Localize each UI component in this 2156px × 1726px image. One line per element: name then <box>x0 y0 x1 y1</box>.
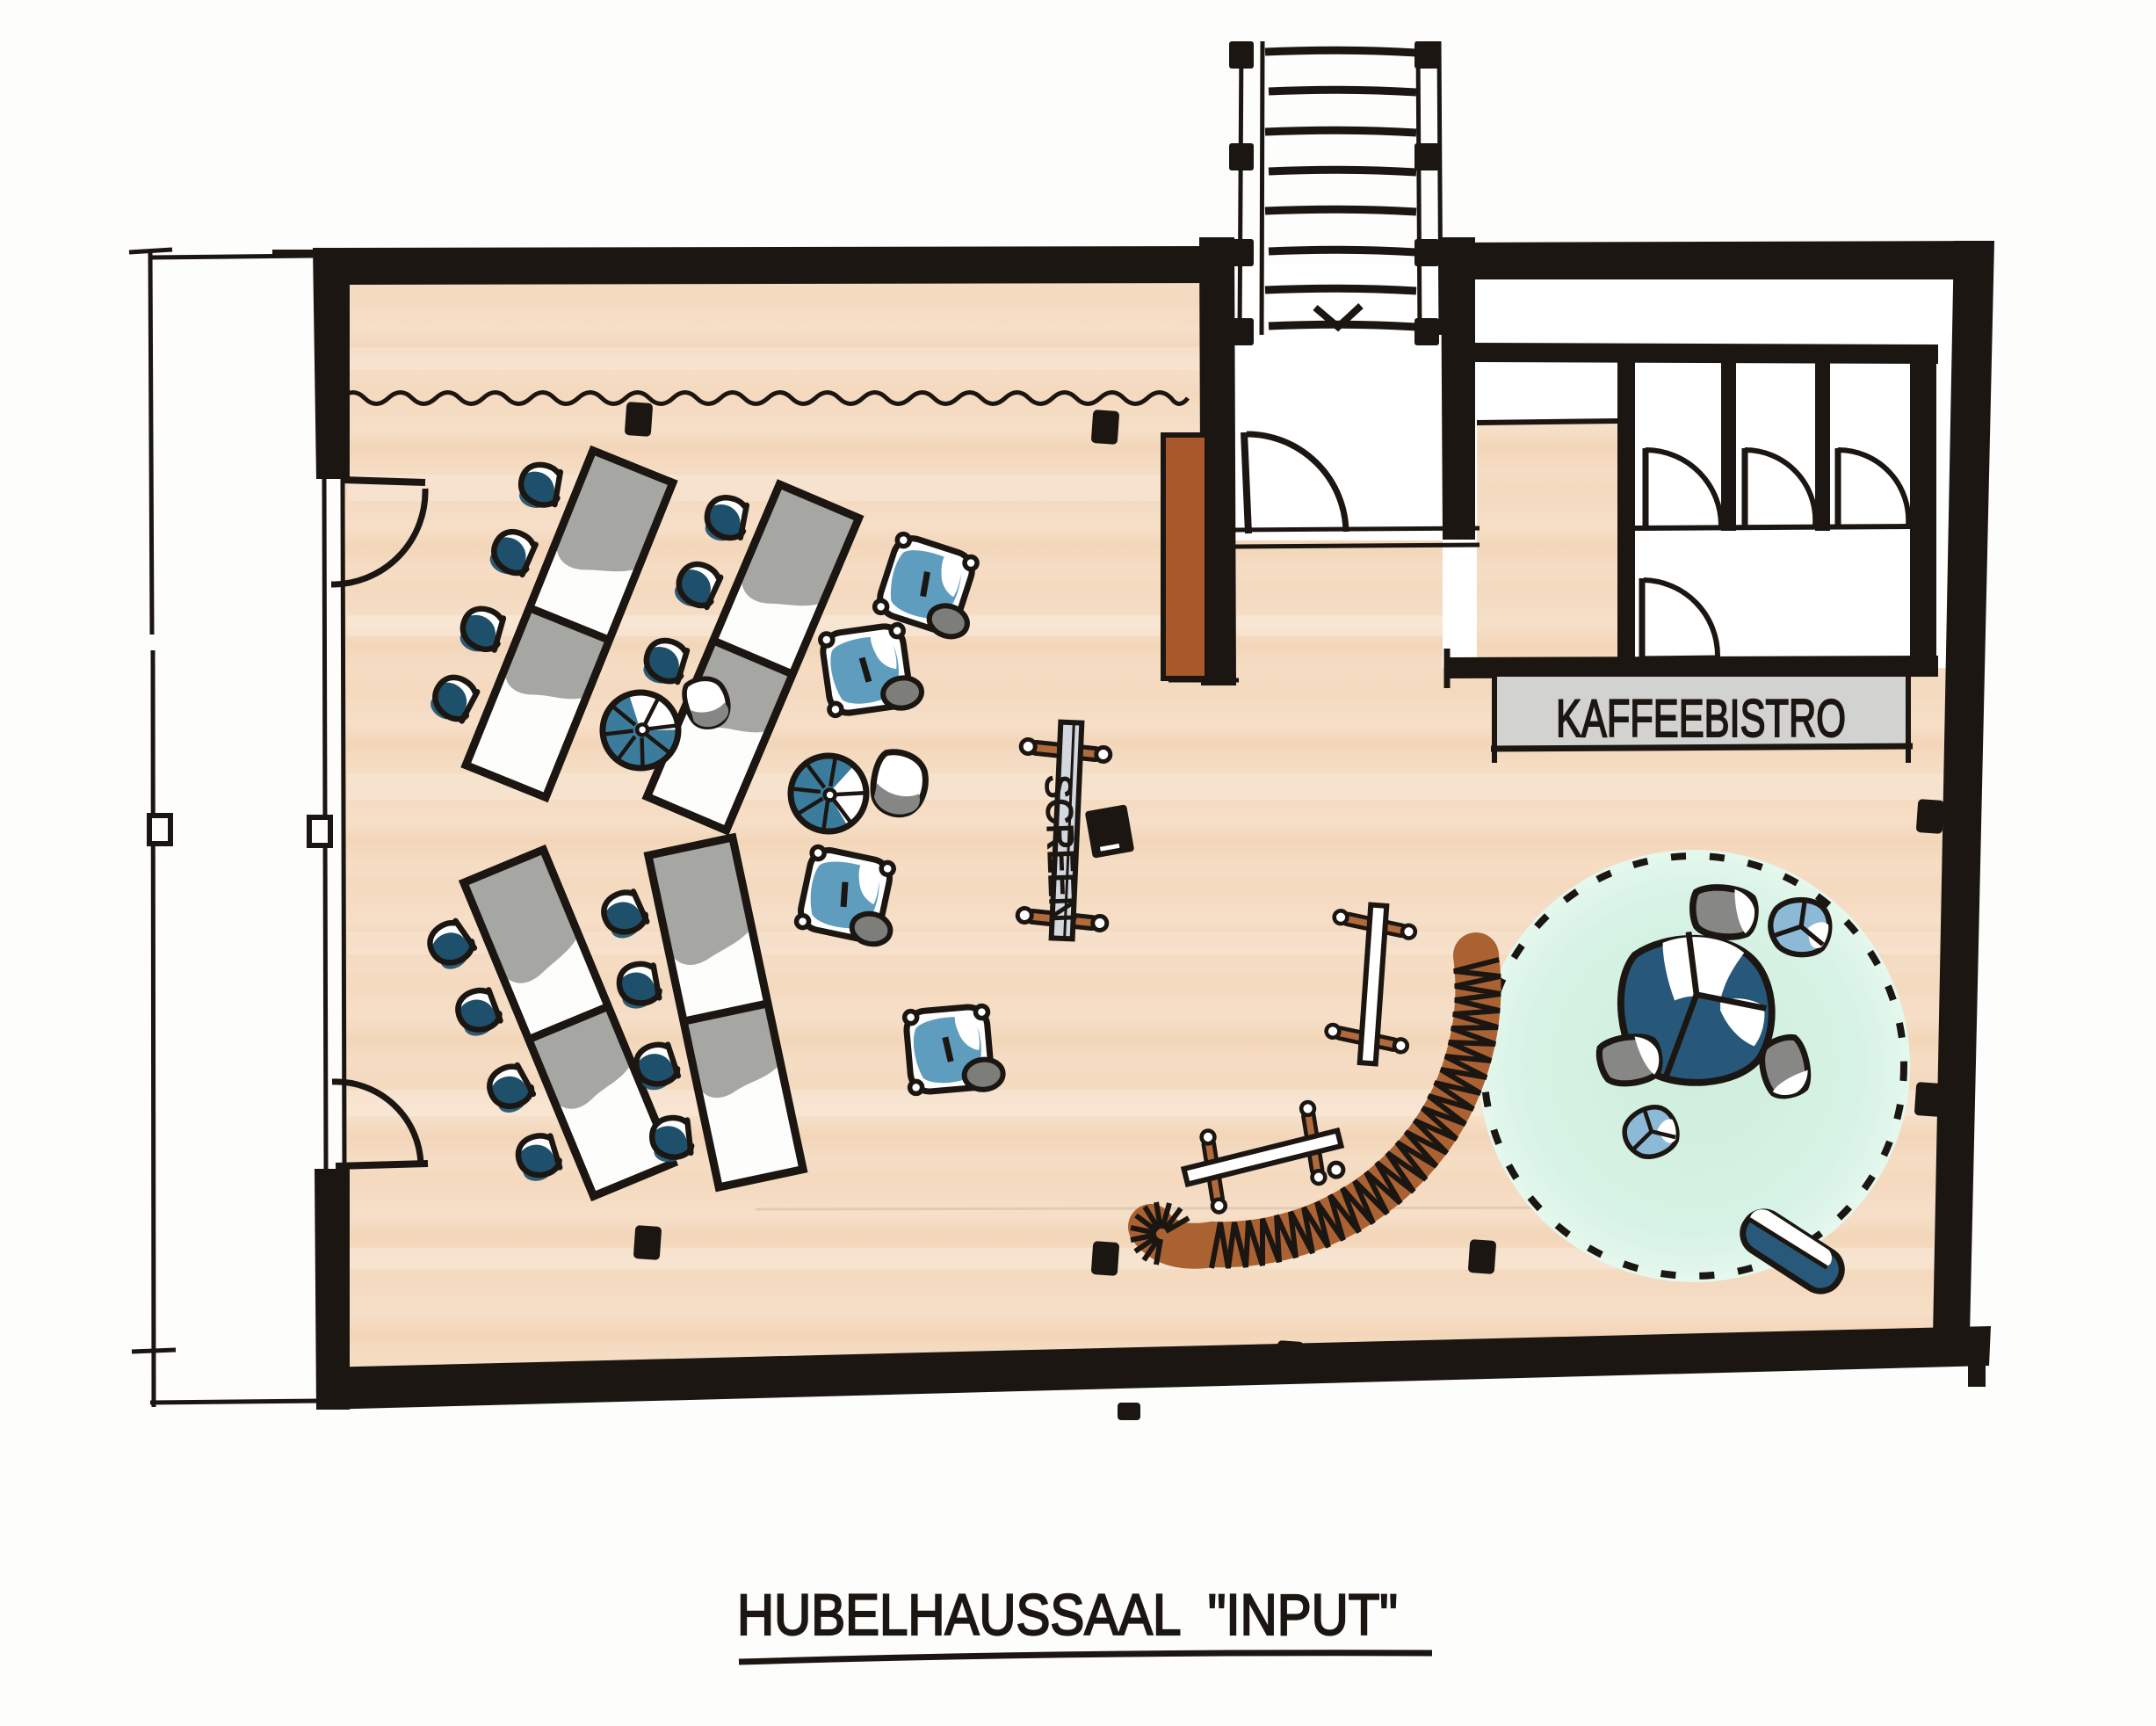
svg-text:HUBELHAUSSAAL "INPUT": HUBELHAUSSAAL "INPUT" <box>737 1582 1398 1647</box>
svg-text:KAFFEEBISTRO: KAFFEEBISTRO <box>1556 689 1846 748</box>
svg-text:SCREEN: SCREEN <box>1038 774 1084 924</box>
